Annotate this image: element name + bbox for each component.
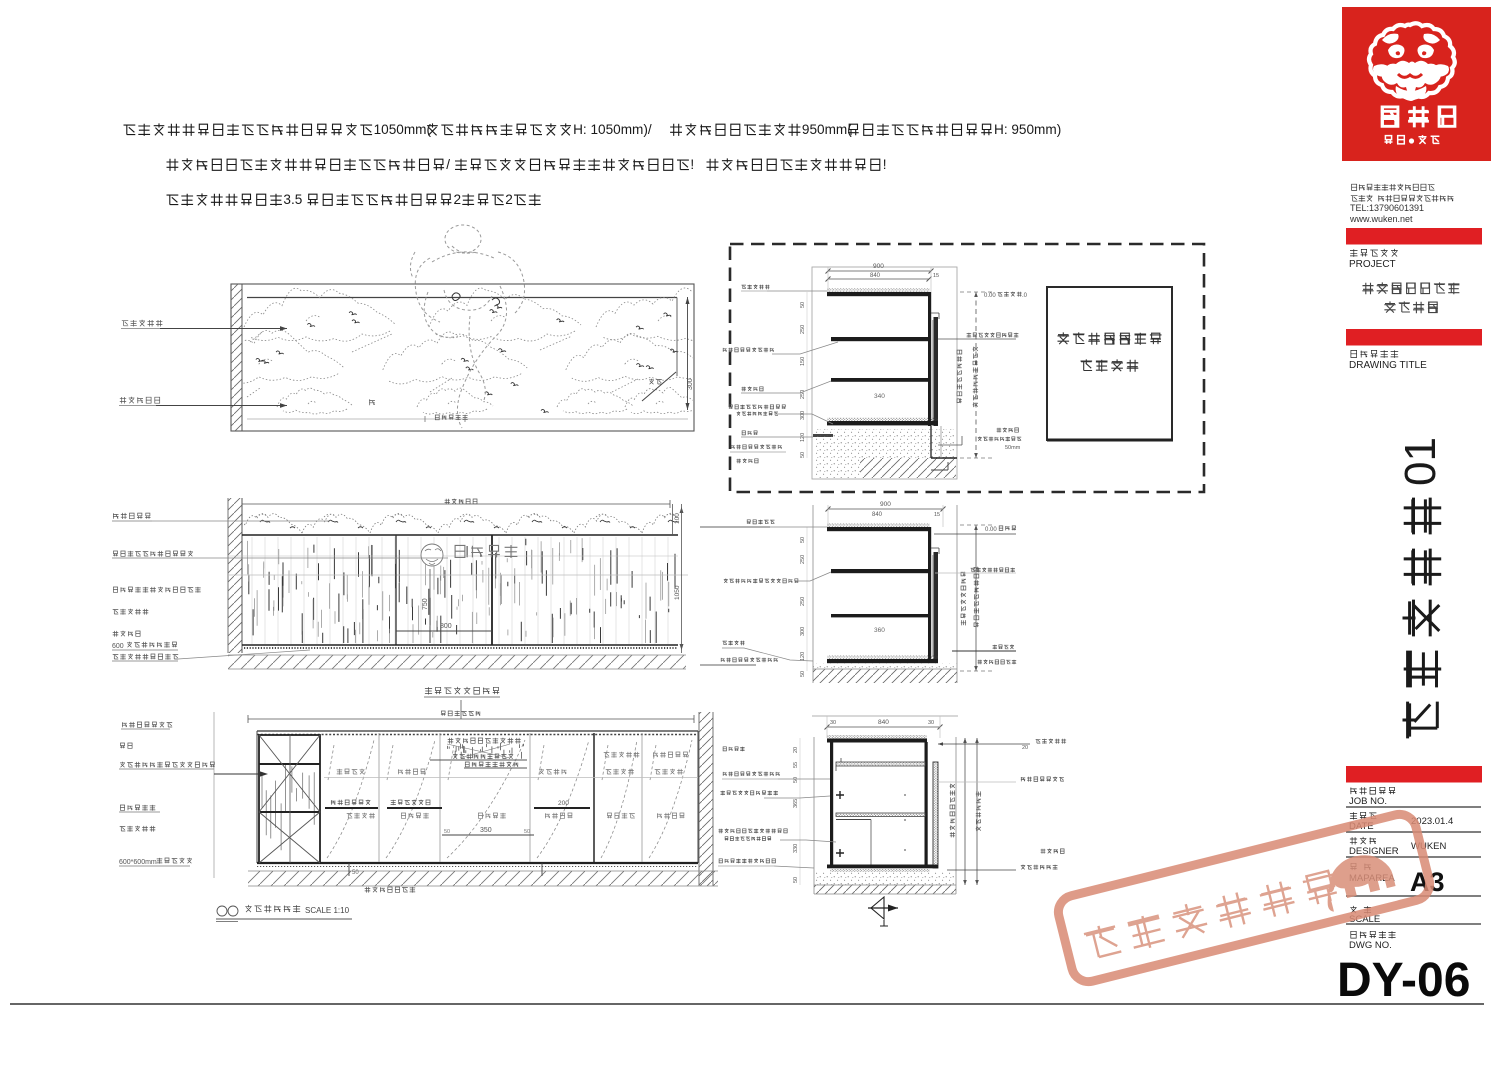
svg-text:2: 2 <box>505 192 513 207</box>
svg-text:1050: 1050 <box>674 585 681 600</box>
svg-text:www.wuken.net: www.wuken.net <box>1349 214 1413 224</box>
svg-text:0.00: 0.00 <box>984 293 996 299</box>
svg-text:.0: .0 <box>1022 293 1028 299</box>
svg-text:600: 600 <box>112 643 124 650</box>
svg-text:840: 840 <box>878 719 889 726</box>
svg-text:DESIGNER: DESIGNER <box>1349 846 1399 857</box>
svg-text:/: / <box>446 157 450 172</box>
svg-text:300: 300 <box>800 627 806 636</box>
svg-text:DWG NO.: DWG NO. <box>1349 940 1392 951</box>
svg-text:350: 350 <box>480 827 492 834</box>
svg-text:100: 100 <box>674 513 681 524</box>
svg-text:950mm(: 950mm( <box>802 122 852 137</box>
svg-text:30: 30 <box>928 720 934 726</box>
svg-text:900: 900 <box>873 263 884 270</box>
svg-text:50: 50 <box>800 302 806 308</box>
svg-text:200: 200 <box>558 800 569 807</box>
svg-text:750: 750 <box>422 598 429 610</box>
svg-text:300: 300 <box>687 378 694 390</box>
svg-text:DRAWING TITLE: DRAWING TITLE <box>1349 360 1427 371</box>
svg-text:600*600mm: 600*600mm <box>119 859 157 866</box>
svg-text:250: 250 <box>800 325 806 334</box>
svg-text:50: 50 <box>524 829 530 835</box>
svg-text:120: 120 <box>800 652 806 661</box>
svg-text:H: 1050mm)/: H: 1050mm)/ <box>573 122 652 137</box>
svg-text:H: 950mm): H: 950mm) <box>994 122 1061 137</box>
svg-text:50: 50 <box>800 452 806 458</box>
svg-text:50mm: 50mm <box>1005 445 1021 451</box>
svg-text:800: 800 <box>440 623 452 630</box>
svg-text:20: 20 <box>793 747 799 753</box>
svg-text:3.5: 3.5 <box>283 192 302 207</box>
svg-text:DY-06: DY-06 <box>1337 954 1470 1007</box>
svg-text:JOB NO.: JOB NO. <box>1349 796 1387 807</box>
svg-text:840: 840 <box>870 273 881 279</box>
svg-text:300: 300 <box>800 411 806 420</box>
svg-text:120: 120 <box>800 433 806 442</box>
svg-text:365: 365 <box>793 799 799 808</box>
svg-text:2: 2 <box>454 192 462 207</box>
svg-text:PROJECT: PROJECT <box>1349 259 1396 270</box>
svg-text:TEL:13790601391: TEL:13790601391 <box>1350 203 1424 213</box>
svg-text:150: 150 <box>800 357 806 366</box>
svg-text:50: 50 <box>793 777 799 783</box>
svg-text:SCALE 1:10: SCALE 1:10 <box>305 906 350 915</box>
svg-text:0.00: 0.00 <box>985 527 997 533</box>
svg-text:330: 330 <box>793 844 799 853</box>
svg-text:50: 50 <box>444 829 450 835</box>
svg-text:01: 01 <box>1396 437 1445 486</box>
svg-text:1050mm(: 1050mm( <box>374 122 432 137</box>
svg-text:55: 55 <box>793 762 799 768</box>
svg-text:20: 20 <box>1022 745 1028 751</box>
svg-text:50: 50 <box>793 877 799 883</box>
svg-text:15: 15 <box>934 512 940 518</box>
svg-text:840: 840 <box>872 512 883 518</box>
svg-text:!: ! <box>690 157 694 172</box>
svg-text:30: 30 <box>830 720 836 726</box>
svg-text:50: 50 <box>800 671 806 677</box>
svg-text:!: ! <box>883 157 887 172</box>
svg-text:50: 50 <box>800 537 806 543</box>
svg-text:900: 900 <box>880 501 891 508</box>
svg-text:250: 250 <box>800 597 806 606</box>
svg-text:50: 50 <box>352 870 359 876</box>
svg-text:360: 360 <box>874 627 885 634</box>
svg-text:15: 15 <box>933 273 939 279</box>
svg-text:340: 340 <box>874 393 885 400</box>
svg-text:250: 250 <box>800 555 806 564</box>
